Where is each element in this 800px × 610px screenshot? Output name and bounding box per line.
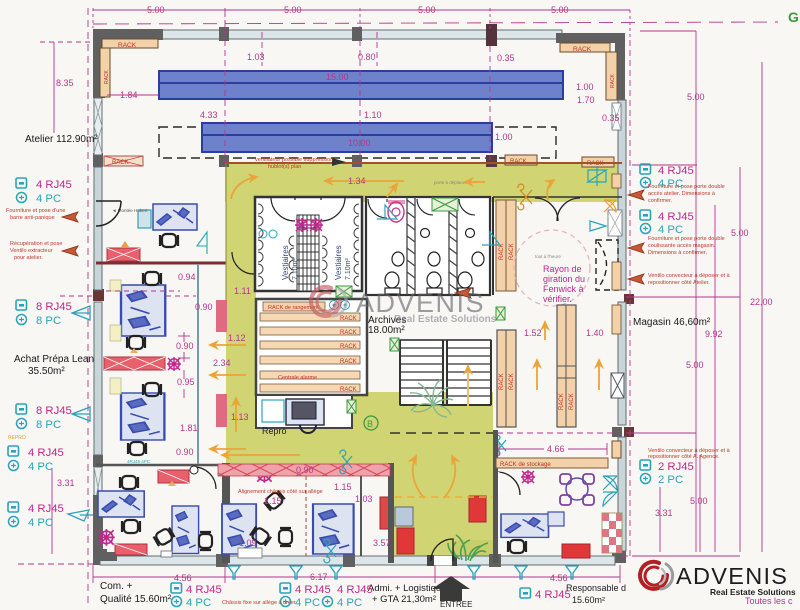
svg-text:8 RJ45: 8 RJ45 (36, 301, 72, 313)
svg-text:0.35: 0.35 (602, 113, 620, 123)
svg-text:1.00: 1.00 (495, 132, 513, 142)
svg-text:RACK: RACK (573, 46, 592, 53)
svg-text:1.13: 1.13 (231, 412, 249, 422)
svg-text:2 RJ45: 2 RJ45 (658, 461, 694, 473)
svg-text:RACK de stockage: RACK de stockage (500, 462, 551, 468)
svg-text:1.09: 1.09 (239, 538, 257, 548)
svg-text:1.00: 1.00 (576, 82, 594, 92)
svg-text:Rayon de: Rayon de (543, 264, 582, 274)
svg-text:ventilateur possible suppressi: ventilateur possible suppression (255, 157, 333, 163)
svg-text:Châssis fixe sur allège à crée: Châssis fixe sur allège à créer (222, 600, 296, 606)
svg-text:Toutes les c: Toutes les c (745, 596, 793, 606)
svg-text:4 PC: 4 PC (658, 224, 683, 236)
svg-text:4 PC: 4 PC (36, 193, 61, 205)
svg-text:Repro: Repro (262, 426, 287, 436)
svg-text:Fourniture et pose porte doubl: Fourniture et pose porte double (648, 236, 725, 242)
svg-text:7.10m²: 7.10m² (345, 258, 352, 280)
svg-text:ADVENIS: ADVENIS (676, 563, 788, 589)
svg-text:0.90: 0.90 (296, 465, 314, 475)
svg-text:3.57: 3.57 (373, 538, 391, 548)
svg-text:0.95: 0.95 (177, 377, 195, 387)
svg-text:4 RJ45: 4 RJ45 (28, 503, 64, 515)
svg-text:ENTREE: ENTREE (440, 600, 472, 609)
svg-text:4.56: 4.56 (174, 573, 192, 583)
svg-text:8.35: 8.35 (56, 78, 74, 88)
svg-text:confirmer.: confirmer. (648, 198, 673, 204)
svg-text:Récupération et pose: Récupération et pose (10, 241, 62, 247)
svg-text:porte à déplacer: porte à déplacer (434, 180, 467, 185)
svg-text:Ventilo extracteur: Ventilo extracteur (10, 248, 53, 254)
svg-text:RACK: RACK (340, 344, 357, 350)
svg-text:4 PC: 4 PC (28, 461, 53, 473)
svg-text:5.00: 5.00 (418, 5, 436, 15)
svg-text:Magasin 46,60m²: Magasin 46,60m² (633, 317, 711, 328)
svg-text:1.81: 1.81 (180, 423, 198, 433)
svg-text:4 PC: 4 PC (28, 517, 53, 529)
svg-text:hublot(s) plan: hublot(s) plan (268, 164, 301, 170)
svg-text:5.00: 5.00 (731, 228, 749, 238)
svg-text:repositionner côté A. Agence.: repositionner côté A. Agence. (648, 454, 720, 460)
svg-text:5.00: 5.00 (284, 5, 302, 15)
svg-text:15.60m²: 15.60m² (572, 595, 605, 605)
svg-text:B: B (367, 419, 373, 429)
svg-text:RACK: RACK (112, 160, 129, 166)
svg-text:3.31: 3.31 (57, 478, 75, 488)
svg-text:1.12: 1.12 (228, 333, 246, 343)
svg-text:8 PC: 8 PC (36, 315, 61, 327)
svg-text:accès atelier. Dimensions à: accès atelier. Dimensions à (648, 191, 716, 197)
svg-text:pour atelier.: pour atelier. (14, 255, 43, 261)
svg-text:6.17: 6.17 (310, 572, 328, 582)
svg-text:1.70: 1.70 (577, 95, 595, 105)
svg-text:4 RJ45: 4 RJ45 (36, 179, 72, 191)
svg-text:5.00: 5.00 (147, 5, 165, 15)
svg-text:+ GTA 21,30m²: + GTA 21,30m² (372, 594, 436, 605)
svg-text:5.00: 5.00 (690, 496, 708, 506)
svg-text:1.40: 1.40 (586, 328, 604, 338)
svg-text:10.00: 10.00 (348, 138, 371, 148)
svg-text:tout à l'heure: tout à l'heure (535, 254, 561, 259)
svg-text:Ventilo convecteur à déposer e: Ventilo convecteur à déposer et à (648, 273, 731, 279)
svg-text:1.34: 1.34 (348, 176, 366, 186)
svg-text:Responsable d: Responsable d (566, 583, 626, 593)
svg-text:◄ Montée Hubert: ◄ Montée Hubert (112, 208, 148, 213)
svg-text:coulissante accès magasin.: coulissante accès magasin. (648, 243, 716, 249)
svg-text:0.90: 0.90 (176, 447, 194, 457)
svg-text:Achat Prépa Lean: Achat Prépa Lean (14, 354, 94, 365)
svg-text:Vestiaires: Vestiaires (334, 245, 343, 280)
svg-text:8 PC: 8 PC (36, 419, 61, 431)
svg-text:4 PC: 4 PC (295, 597, 320, 609)
svg-text:4 RJ45: 4 RJ45 (295, 584, 331, 596)
svg-text:1.52: 1.52 (524, 328, 542, 338)
svg-text:Alignement châssis côté sur al: Alignement châssis côté sur allège (238, 489, 323, 495)
svg-text:Qualité 15.60m²: Qualité 15.60m² (100, 594, 172, 605)
svg-text:0.90: 0.90 (176, 341, 194, 351)
svg-text:RACK: RACK (340, 387, 357, 393)
svg-text:repositionner côté Atelier.: repositionner côté Atelier. (648, 280, 710, 286)
svg-text:5.00: 5.00 (551, 5, 569, 15)
svg-text:Dimensions à confirmer.: Dimensions à confirmer. (648, 250, 707, 256)
svg-text:18.00m²: 18.00m² (368, 325, 405, 336)
svg-text:REPRO: REPRO (8, 435, 26, 441)
svg-text:RACK: RACK (569, 393, 575, 410)
svg-text:RACK: RACK (509, 243, 515, 260)
svg-text:Fenwick à: Fenwick à (543, 284, 584, 294)
svg-text:22.00: 22.00 (750, 297, 773, 307)
svg-text:Atelier 112.90m²: Atelier 112.90m² (25, 134, 98, 145)
svg-text:1.15: 1.15 (264, 496, 282, 506)
svg-text:4 RJ45: 4 RJ45 (658, 165, 694, 177)
svg-text:RACK: RACK (499, 243, 505, 260)
svg-text:4 RJ45: 4 RJ45 (658, 211, 694, 223)
svg-text:4 RJ45: 4 RJ45 (28, 447, 64, 459)
svg-text:RACK: RACK (610, 73, 616, 88)
svg-text:RACK: RACK (118, 42, 137, 49)
svg-text:giration du: giration du (543, 274, 585, 284)
svg-text:4RJ45 4PC: 4RJ45 4PC (127, 459, 151, 464)
svg-text:RACK: RACK (340, 316, 357, 322)
svg-text:0.94: 0.94 (178, 272, 196, 282)
svg-text:Fourniture et pose porte doubl: Fourniture et pose porte double (648, 184, 725, 190)
svg-text:0.90: 0.90 (195, 302, 213, 312)
svg-text:RACK: RACK (104, 69, 110, 84)
svg-text:RACK: RACK (499, 373, 505, 390)
svg-text:2.34: 2.34 (213, 358, 231, 368)
svg-text:4.56: 4.56 (550, 573, 568, 583)
svg-text:4 PC: 4 PC (337, 597, 362, 609)
svg-text:1.11: 1.11 (234, 286, 251, 296)
svg-text:0.35: 0.35 (497, 53, 515, 63)
svg-text:4 RJ45: 4 RJ45 (535, 589, 571, 601)
svg-text:8 RJ45: 8 RJ45 (36, 405, 72, 417)
svg-text:Vestiaires: Vestiaires (281, 245, 290, 280)
svg-text:Centrale alarme: Centrale alarme (278, 375, 317, 381)
svg-text:Real Estate Solutions: Real Estate Solutions (394, 314, 497, 325)
svg-text:4.66: 4.66 (547, 444, 565, 454)
svg-text:15.00: 15.00 (326, 72, 349, 82)
svg-text:1.15: 1.15 (334, 482, 352, 492)
svg-text:G: G (788, 9, 799, 25)
svg-text:2 PC: 2 PC (658, 474, 683, 486)
svg-text:4.33: 4.33 (200, 110, 218, 120)
svg-text:1.03: 1.03 (355, 494, 373, 504)
svg-text:3.31: 3.31 (655, 508, 673, 518)
svg-text:5.00: 5.00 (687, 92, 705, 102)
svg-text:barre anti-panique: barre anti-panique (10, 215, 55, 221)
svg-text:4 RJ45: 4 RJ45 (186, 584, 222, 596)
svg-text:RACK: RACK (340, 359, 357, 365)
svg-text:RACK: RACK (559, 393, 565, 410)
svg-text:1.10: 1.10 (364, 110, 382, 120)
svg-text:0.80: 0.80 (358, 52, 376, 62)
svg-text:Com. +: Com. + (100, 581, 133, 592)
svg-text:Fourniture et pose d'une: Fourniture et pose d'une (6, 208, 65, 214)
svg-text:vérifier.: vérifier. (543, 294, 572, 304)
svg-text:RACK: RACK (509, 373, 515, 390)
svg-text:4 PC: 4 PC (186, 597, 211, 609)
svg-text:35.50m²: 35.50m² (28, 366, 65, 377)
svg-text:5.00: 5.00 (686, 360, 704, 370)
svg-text:9.92: 9.92 (705, 329, 723, 339)
svg-text:RACK: RACK (340, 330, 357, 336)
svg-text:4 RJ45: 4 RJ45 (337, 584, 373, 596)
svg-text:7.10m²: 7.10m² (292, 258, 299, 280)
